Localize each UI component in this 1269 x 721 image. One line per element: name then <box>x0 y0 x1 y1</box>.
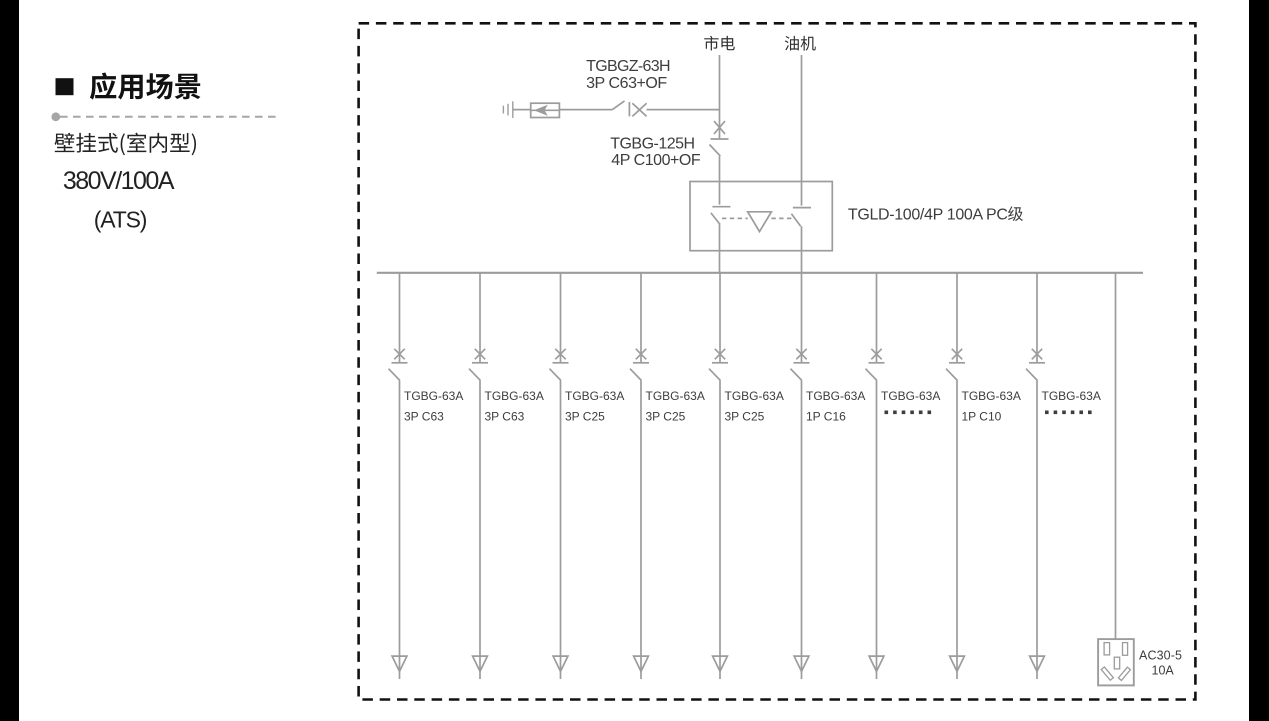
svg-text:3P C25: 3P C25 <box>565 410 605 424</box>
svg-text:3P C63: 3P C63 <box>404 410 444 424</box>
svg-text:TGBG-63A: TGBG-63A <box>806 389 865 403</box>
svg-text:3P C63: 3P C63 <box>485 410 525 424</box>
svg-text:380V/100A: 380V/100A <box>63 167 175 195</box>
svg-text:3P C25: 3P C25 <box>725 410 765 424</box>
svg-text:TGBG-63A: TGBG-63A <box>646 389 705 403</box>
svg-text:TGBG-63A: TGBG-63A <box>1042 389 1101 403</box>
svg-text:TGBG-63A: TGBG-63A <box>881 389 940 403</box>
svg-text:(ATS): (ATS) <box>94 207 148 233</box>
svg-text:TGBG-125H: TGBG-125H <box>610 135 695 152</box>
svg-text:TGBG-63A: TGBG-63A <box>404 389 463 403</box>
svg-text:TGBG-63A: TGBG-63A <box>485 389 544 403</box>
svg-text:TGBG-63A: TGBG-63A <box>962 389 1021 403</box>
svg-text:3P C25: 3P C25 <box>646 410 686 424</box>
svg-text:TGBG-63A: TGBG-63A <box>565 389 624 403</box>
svg-text:1P C16: 1P C16 <box>806 410 846 424</box>
svg-text:TGBGZ-63H: TGBGZ-63H <box>586 58 670 75</box>
svg-text:TGBG-63A: TGBG-63A <box>725 389 784 403</box>
svg-text:10A: 10A <box>1152 664 1175 678</box>
svg-text:3P C63+OF: 3P C63+OF <box>586 75 667 92</box>
svg-text:4P C100+OF: 4P C100+OF <box>611 152 701 169</box>
svg-text:1P C10: 1P C10 <box>962 410 1002 424</box>
svg-text:TGLD-100/4P 100A PC: TGLD-100/4P 100A PC <box>848 207 1008 224</box>
svg-text:AC30-5: AC30-5 <box>1139 648 1182 662</box>
